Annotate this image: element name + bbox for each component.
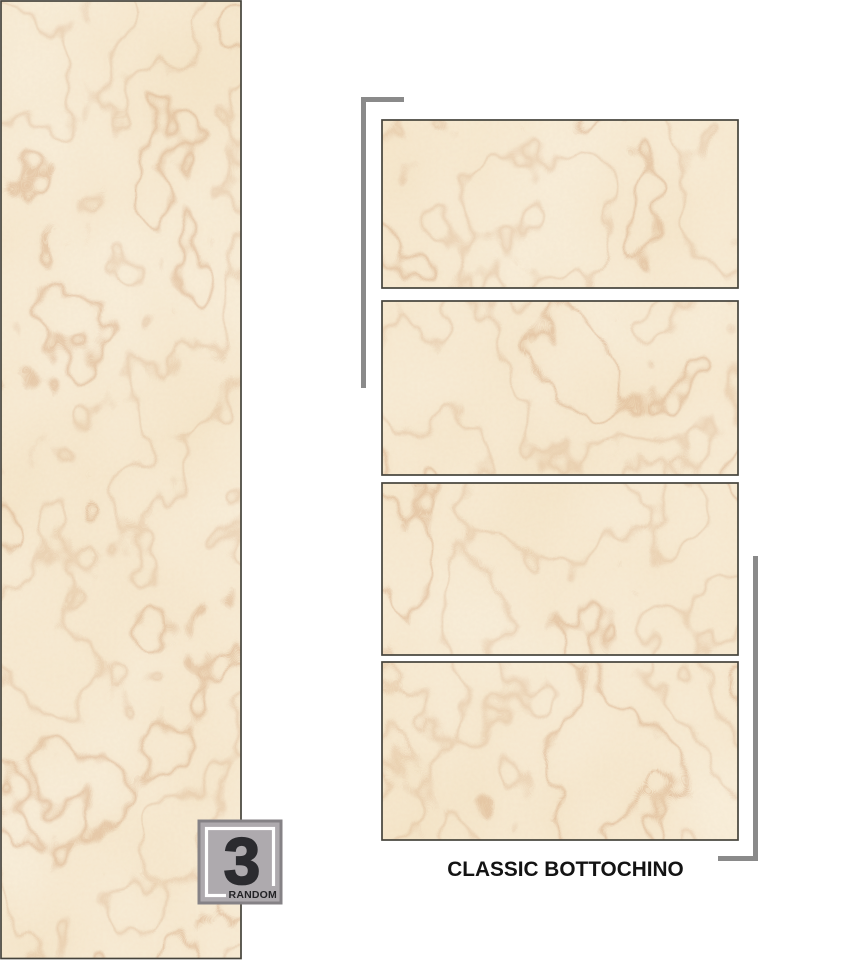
svg-text:CLASSIC BOTTOCHINO: CLASSIC BOTTOCHINO — [447, 858, 683, 881]
svg-text:3: 3 — [224, 824, 261, 898]
svg-text:RANDOM: RANDOM — [229, 889, 277, 901]
